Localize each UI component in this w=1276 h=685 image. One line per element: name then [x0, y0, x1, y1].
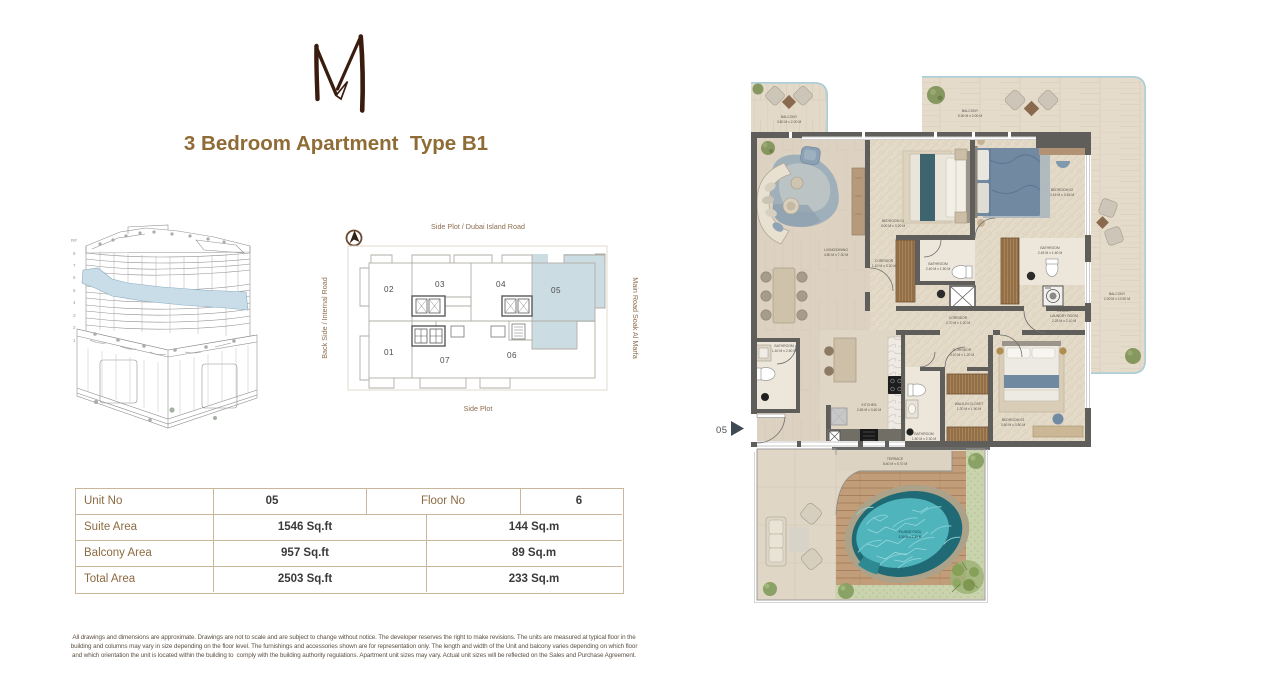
svg-text:BALCONY: BALCONY	[781, 115, 798, 119]
svg-text:PLUNGE POOL: PLUNGE POOL	[899, 530, 922, 534]
svg-text:1.80 M x 2.30 M: 1.80 M x 2.30 M	[912, 437, 936, 441]
svg-text:LAUNDRY ROOM: LAUNDRY ROOM	[1050, 314, 1078, 318]
svg-text:CORRIDOR: CORRIDOR	[949, 316, 968, 320]
svg-text:3.30 M x 2.30 M: 3.30 M x 2.30 M	[899, 535, 922, 539]
svg-text:1.40 M x 2.50 M: 1.40 M x 2.50 M	[772, 349, 796, 353]
svg-text:Back Side / Internal Road: Back Side / Internal Road	[320, 277, 329, 359]
svg-text:Main Road Soak Al Marfa: Main Road Soak Al Marfa	[631, 277, 640, 359]
svg-text:03: 03	[435, 280, 445, 289]
svg-text:2.40 M x 1.50 M: 2.40 M x 1.50 M	[926, 267, 950, 271]
svg-text:TERRACE: TERRACE	[887, 457, 904, 461]
svg-text:1.10 M x 3.30 M: 1.10 M x 3.30 M	[872, 264, 896, 268]
svg-text:4.70 M x 1.20 M: 4.70 M x 1.20 M	[946, 321, 970, 325]
svg-text:5.30 M x 2.00 M: 5.30 M x 2.00 M	[958, 114, 982, 118]
svg-text:4.15 M x 3.45 M: 4.15 M x 3.45 M	[1050, 193, 1074, 197]
svg-text:7: 7	[73, 263, 76, 268]
svg-text:CORRIDOR: CORRIDOR	[875, 259, 894, 263]
svg-text:4: 4	[73, 300, 76, 305]
svg-text:LIVING/DINING: LIVING/DINING	[824, 248, 848, 252]
svg-text:BATHROOM: BATHROOM	[1040, 246, 1060, 250]
svg-text:BEDROOM 03: BEDROOM 03	[1002, 418, 1024, 422]
svg-text:RF: RF	[71, 238, 77, 243]
svg-text:Side Plot: Side Plot	[464, 404, 493, 413]
svg-text:8.60 M x 5.70 M: 8.60 M x 5.70 M	[883, 462, 907, 466]
svg-text:2: 2	[73, 325, 76, 330]
svg-text:02: 02	[384, 285, 394, 294]
svg-text:STORE /: STORE /	[1057, 309, 1071, 313]
svg-text:2.00 M x 10.90 M: 2.00 M x 10.90 M	[1104, 297, 1130, 301]
svg-text:CORRIDOR: CORRIDOR	[953, 348, 972, 352]
svg-text:3.80 M x 2.00 M: 3.80 M x 2.00 M	[777, 120, 801, 124]
svg-text:BEDROOM 01: BEDROOM 01	[882, 219, 904, 223]
svg-text:5: 5	[73, 288, 76, 293]
svg-text:BATHROOM: BATHROOM	[928, 262, 948, 266]
svg-text:1: 1	[73, 338, 76, 343]
svg-text:07: 07	[440, 356, 450, 365]
svg-text:3: 3	[73, 313, 76, 318]
svg-text:06: 06	[507, 351, 517, 360]
svg-text:04: 04	[496, 280, 506, 289]
svg-text:BALCONY: BALCONY	[962, 109, 979, 113]
svg-text:4.80 M x 7.30 M: 4.80 M x 7.30 M	[824, 253, 848, 257]
svg-text:BALCONY: BALCONY	[1109, 292, 1126, 296]
svg-text:Side Plot / Dubai Island Road: Side Plot / Dubai Island Road	[431, 222, 525, 231]
svg-text:8: 8	[73, 251, 76, 256]
svg-text:1.20 M x 1.90 M: 1.20 M x 1.90 M	[957, 407, 981, 411]
svg-text:BATHROOM: BATHROOM	[914, 432, 934, 436]
svg-text:BATHROOM: BATHROOM	[774, 344, 794, 348]
svg-text:2.65 M x 3.60 M: 2.65 M x 3.60 M	[857, 408, 881, 412]
svg-text:KITCHEN: KITCHEN	[862, 403, 877, 407]
svg-text:3.10 M x 1.20 M: 3.10 M x 1.20 M	[950, 353, 974, 357]
svg-text:2.45 M x 1.60 M: 2.45 M x 1.60 M	[1038, 251, 1062, 255]
svg-text:01: 01	[384, 348, 394, 357]
svg-text:3.00 M x 3.20 M: 3.00 M x 3.20 M	[881, 224, 905, 228]
svg-text:6: 6	[73, 275, 76, 280]
svg-text:WALK-IN CLOSET: WALK-IN CLOSET	[955, 402, 984, 406]
svg-text:2.25 M x 2.10 M: 2.25 M x 2.10 M	[1052, 319, 1076, 323]
svg-text:3.60 M x 3.80 M: 3.60 M x 3.80 M	[1001, 423, 1025, 427]
svg-text:BEDROOM 02: BEDROOM 02	[1051, 188, 1073, 192]
svg-text:05: 05	[551, 286, 561, 295]
